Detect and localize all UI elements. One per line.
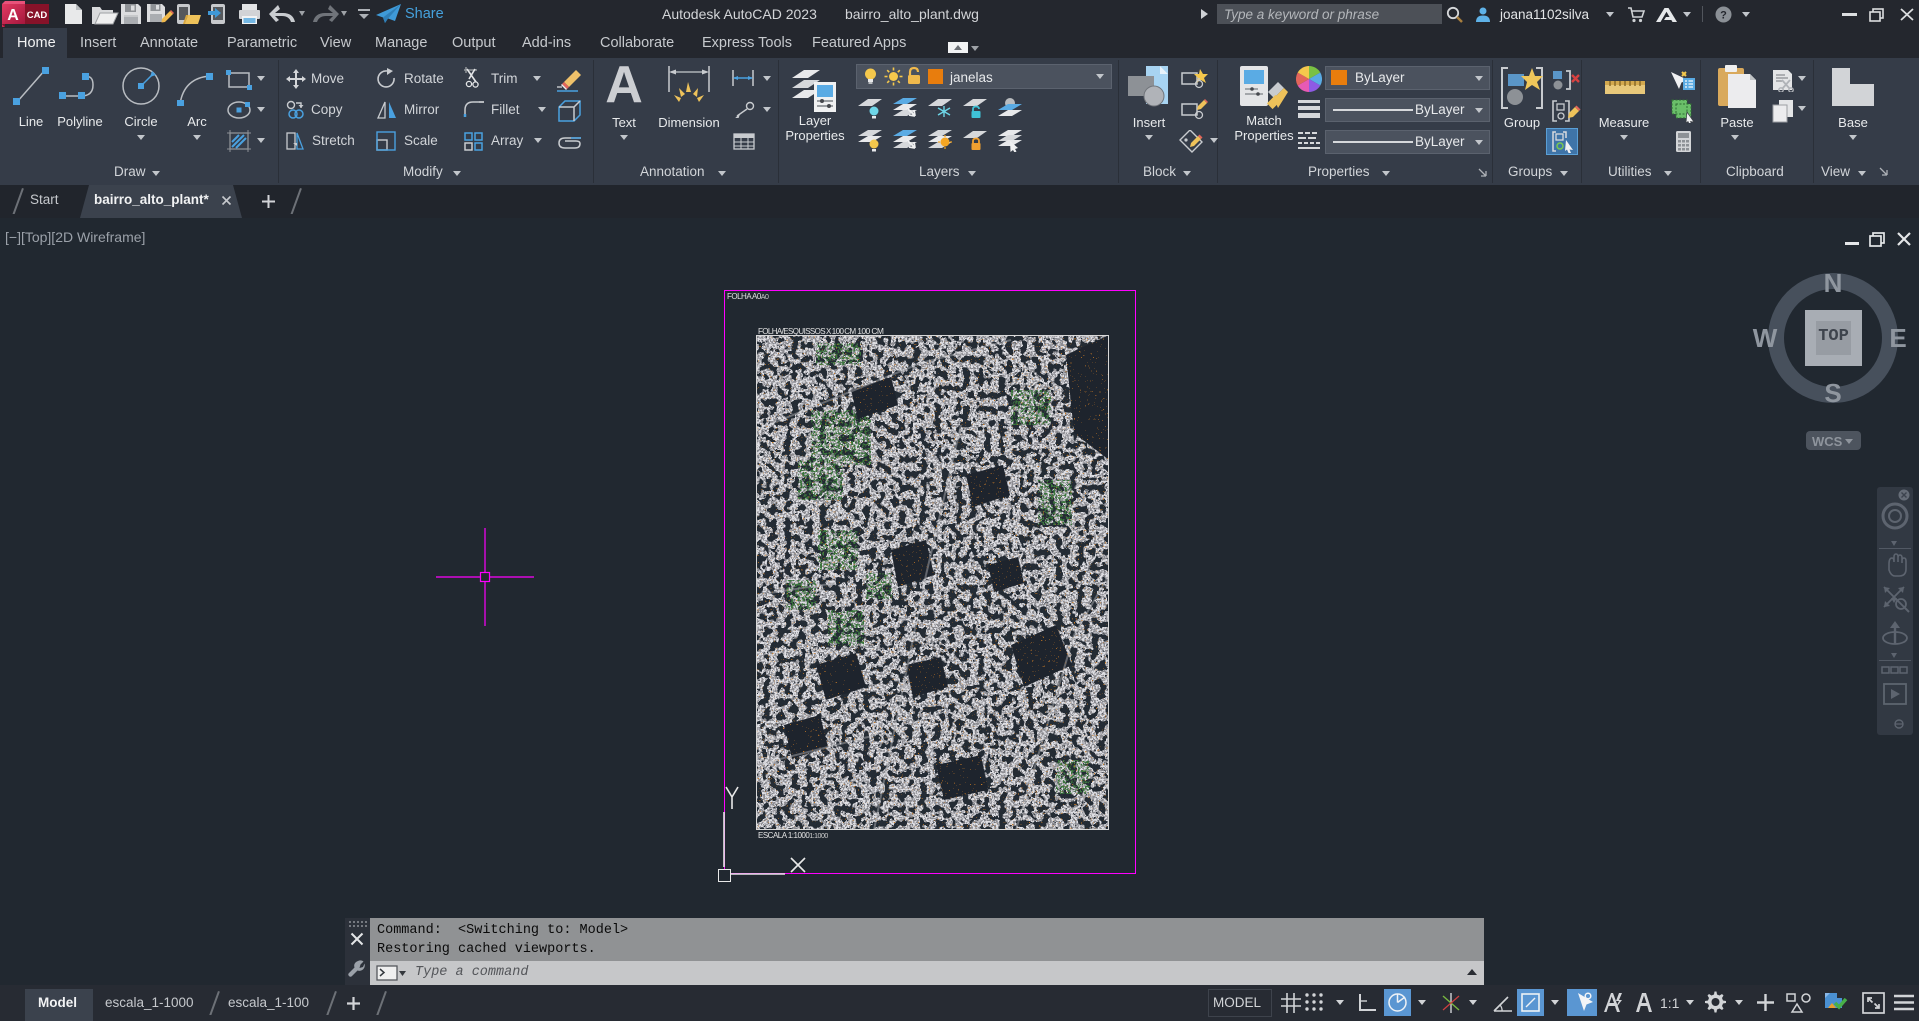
svg-text:A: A bbox=[7, 7, 19, 24]
svg-text:?: ? bbox=[1720, 10, 1727, 22]
svg-text:CAD: CAD bbox=[27, 10, 48, 21]
